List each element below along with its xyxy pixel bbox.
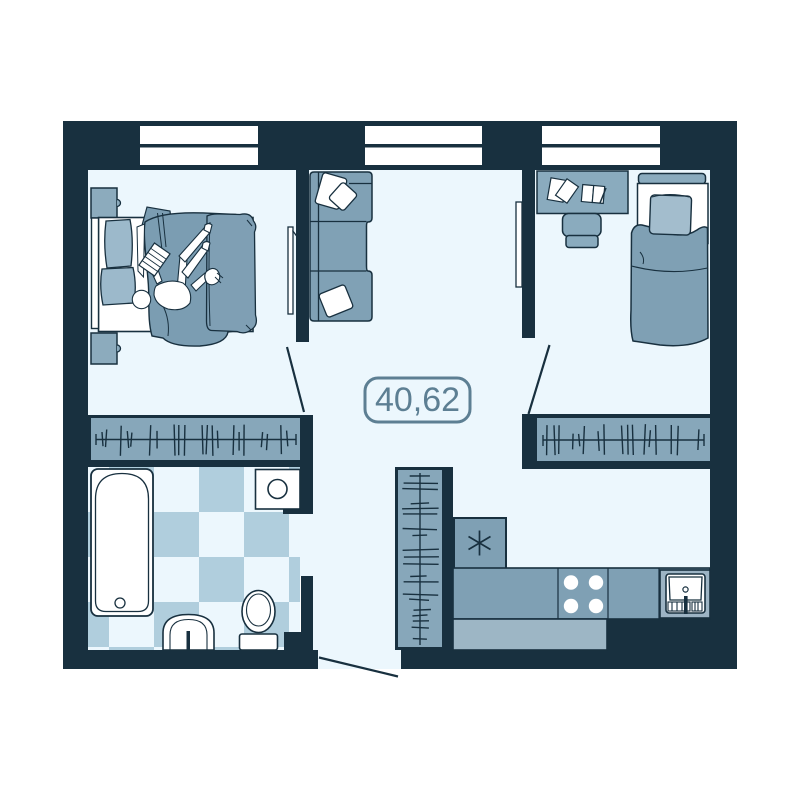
svg-text:40,62: 40,62 (375, 381, 460, 419)
